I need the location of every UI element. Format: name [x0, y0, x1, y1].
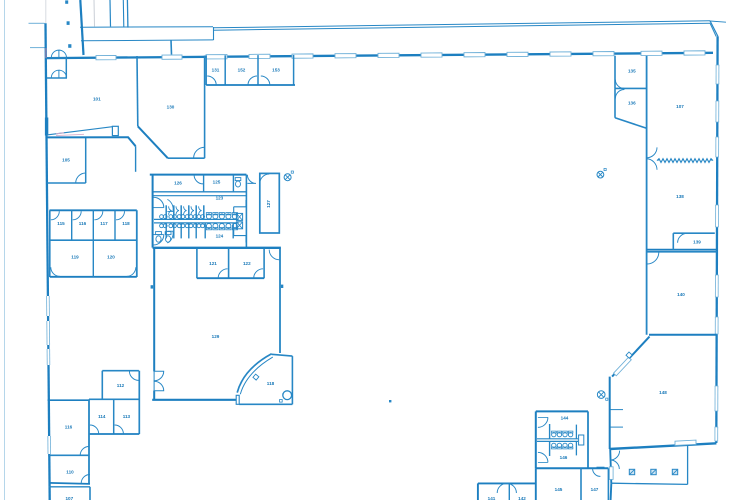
svg-text:147: 147 — [591, 487, 599, 492]
svg-text:110: 110 — [66, 469, 74, 474]
svg-text:136: 136 — [628, 101, 636, 106]
svg-text:105: 105 — [62, 158, 70, 163]
svg-text:153: 153 — [272, 68, 280, 73]
svg-text:119: 119 — [71, 255, 79, 260]
svg-text:116: 116 — [65, 425, 73, 430]
svg-text:130: 130 — [167, 105, 175, 110]
svg-text:114: 114 — [98, 414, 106, 419]
svg-text:138: 138 — [676, 194, 684, 199]
svg-text:131: 131 — [212, 68, 220, 73]
svg-text:120: 120 — [107, 255, 115, 260]
svg-text:118: 118 — [122, 221, 130, 226]
svg-text:121: 121 — [209, 261, 217, 266]
svg-text:129: 129 — [212, 334, 220, 339]
svg-text:118: 118 — [267, 381, 275, 386]
svg-text:125: 125 — [213, 179, 221, 184]
svg-text:139: 139 — [693, 240, 701, 245]
svg-text:145: 145 — [555, 487, 563, 492]
svg-text:146: 146 — [560, 455, 568, 460]
svg-text:113: 113 — [123, 414, 131, 419]
svg-text:107: 107 — [65, 496, 73, 500]
svg-text:142: 142 — [518, 496, 526, 500]
svg-text:107: 107 — [676, 104, 684, 109]
svg-text:140: 140 — [677, 292, 685, 297]
svg-text:144: 144 — [561, 416, 569, 421]
svg-text:124: 124 — [216, 233, 224, 238]
svg-text:152: 152 — [238, 68, 246, 73]
svg-text:122: 122 — [243, 261, 251, 266]
svg-text:127: 127 — [266, 200, 271, 208]
svg-text:117: 117 — [100, 221, 108, 226]
svg-text:101: 101 — [93, 96, 101, 101]
svg-text:115: 115 — [57, 221, 65, 226]
svg-text:148: 148 — [659, 390, 667, 395]
svg-text:112: 112 — [117, 383, 125, 388]
svg-text:123: 123 — [216, 195, 224, 200]
svg-text:141: 141 — [488, 496, 496, 500]
svg-text:135: 135 — [628, 69, 636, 74]
svg-text:126: 126 — [174, 180, 182, 185]
svg-text:116: 116 — [79, 221, 87, 226]
